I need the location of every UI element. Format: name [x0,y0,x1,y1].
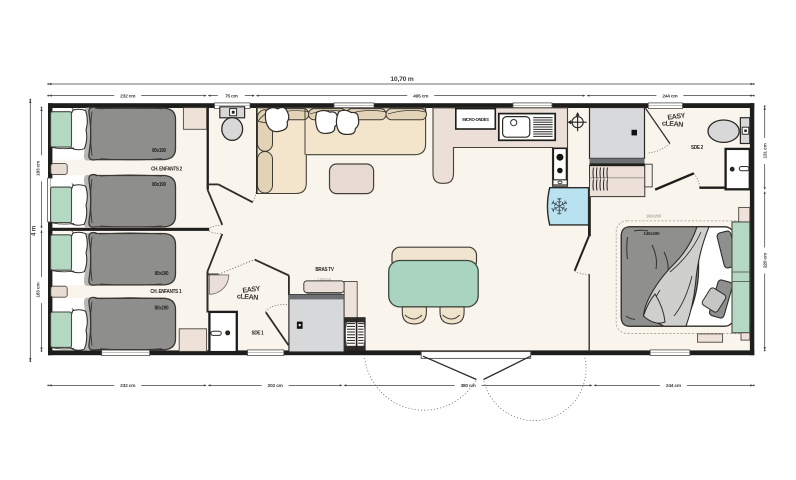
svg-text:80x190: 80x190 [152,182,166,188]
svg-text:232 cm: 232 cm [120,93,136,99]
svg-text:495 cm: 495 cm [413,93,429,99]
svg-text:cLEAN: cLEAN [237,292,259,301]
svg-text:10,70 m: 10,70 m [390,76,413,83]
svg-text:140x190: 140x190 [644,231,660,236]
svg-text:CH. ENFANTS 2: CH. ENFANTS 2 [151,166,182,172]
svg-text:cLEAN: cLEAN [662,119,684,128]
svg-text:75 cm: 75 cm [225,93,239,99]
svg-text:80x190: 80x190 [152,148,166,154]
svg-text:80x190: 80x190 [155,271,169,277]
svg-text:160x200: 160x200 [646,213,662,218]
svg-text:4 m: 4 m [30,225,37,236]
svg-text:80x190: 80x190 [155,305,169,311]
svg-text:SDE 1: SDE 1 [252,330,264,336]
svg-text:MICRO-ONDES: MICRO-ONDES [462,117,489,122]
svg-text:BRAS TV: BRAS TV [315,267,334,273]
svg-text:CH. ENFANTS 1: CH. ENFANTS 1 [150,289,181,295]
svg-text:244 cm: 244 cm [666,383,682,389]
svg-text:183 cm: 183 cm [36,160,42,176]
svg-text:232 cm: 232 cm [120,383,136,389]
svg-text:SDE 2: SDE 2 [691,145,703,151]
svg-text:244 cm: 244 cm [662,93,678,99]
svg-text:202 cm: 202 cm [268,383,284,389]
svg-text:183 cm: 183 cm [36,282,42,298]
svg-text:131 cm: 131 cm [762,143,768,159]
svg-text:220 cm: 220 cm [762,252,768,268]
svg-text:380 cm: 380 cm [460,383,476,389]
